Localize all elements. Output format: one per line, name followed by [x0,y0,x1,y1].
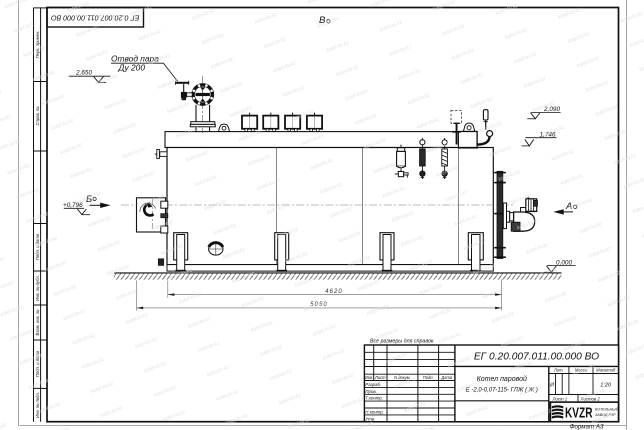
svg-text:5050: 5050 [310,302,328,308]
svg-text:Е -2,0-0,07-115- ГЛЖ ( Ж ): Е -2,0-0,07-115- ГЛЖ ( Ж ) [466,388,538,394]
svg-text:Лист 1: Лист 1 [552,396,568,401]
svg-text:Подп.: Подп. [423,375,434,380]
svg-text:KVZR: KVZR [565,406,593,422]
svg-text:2,650: 2,650 [75,70,92,77]
svg-text:N докум.: N докум. [394,375,411,380]
svg-text:Б: Б [86,194,92,205]
svg-text:1:20: 1:20 [600,383,612,389]
svg-text:4620: 4620 [325,289,343,295]
svg-text:Масса: Масса [575,368,588,373]
svg-text:Пров.: Пров. [365,389,377,394]
svg-text:Котел паровой: Котел паровой [477,375,527,383]
svg-text:Изм.: Изм. [365,375,374,380]
svg-text:ЕГ 0.20.007.011.00.000 ВО: ЕГ 0.20.007.011.00.000 ВО [474,352,599,363]
svg-text:Разраб.: Разраб. [365,382,381,387]
svg-text:Формат А3: Формат А3 [570,423,604,430]
svg-text:Утв.: Утв. [365,416,375,421]
svg-text:Инв. № дубл.: Инв. № дубл. [35,275,40,301]
svg-text:Подп. и дата: Подп. и дата [35,350,40,377]
svg-text:КОТЕЛЬНЫЙ: КОТЕЛЬНЫЙ [595,408,619,412]
svg-text:Все размеры для справок: Все размеры для справок [370,338,434,344]
svg-text:Масштаб: Масштаб [596,368,616,373]
svg-text:Перв. примен.: Перв. примен. [35,31,40,59]
svg-text:Подп. и дата: Подп. и дата [35,233,40,260]
svg-text:Н.контр.: Н.контр. [365,410,384,415]
svg-text:И: И [550,383,554,389]
svg-text:2,090: 2,090 [543,106,560,113]
svg-text:Справ. №: Справ. № [35,106,40,125]
svg-text:ЗАВОД РЗР: ЗАВОД РЗР [595,413,616,417]
svg-text:Т.контр.: Т.контр. [365,396,383,401]
svg-text:Лит.: Лит. [553,368,564,373]
svg-text:Инв. № подл.: Инв. № подл. [35,392,40,418]
svg-text:ЕГ 0.20.007.011.00.000 ВО: ЕГ 0.20.007.011.00.000 ВО [51,14,140,23]
svg-text:В: В [319,15,326,26]
svg-text:Взам. инв. №: Взам. инв. № [35,309,40,335]
svg-text:Дата: Дата [440,375,453,380]
svg-text:1,746: 1,746 [540,131,556,138]
svg-text:Лист: Лист [374,375,386,380]
svg-text:Листов 2: Листов 2 [580,396,601,401]
svg-text:Ду 200: Ду 200 [118,63,146,73]
svg-text:А: А [565,201,572,212]
